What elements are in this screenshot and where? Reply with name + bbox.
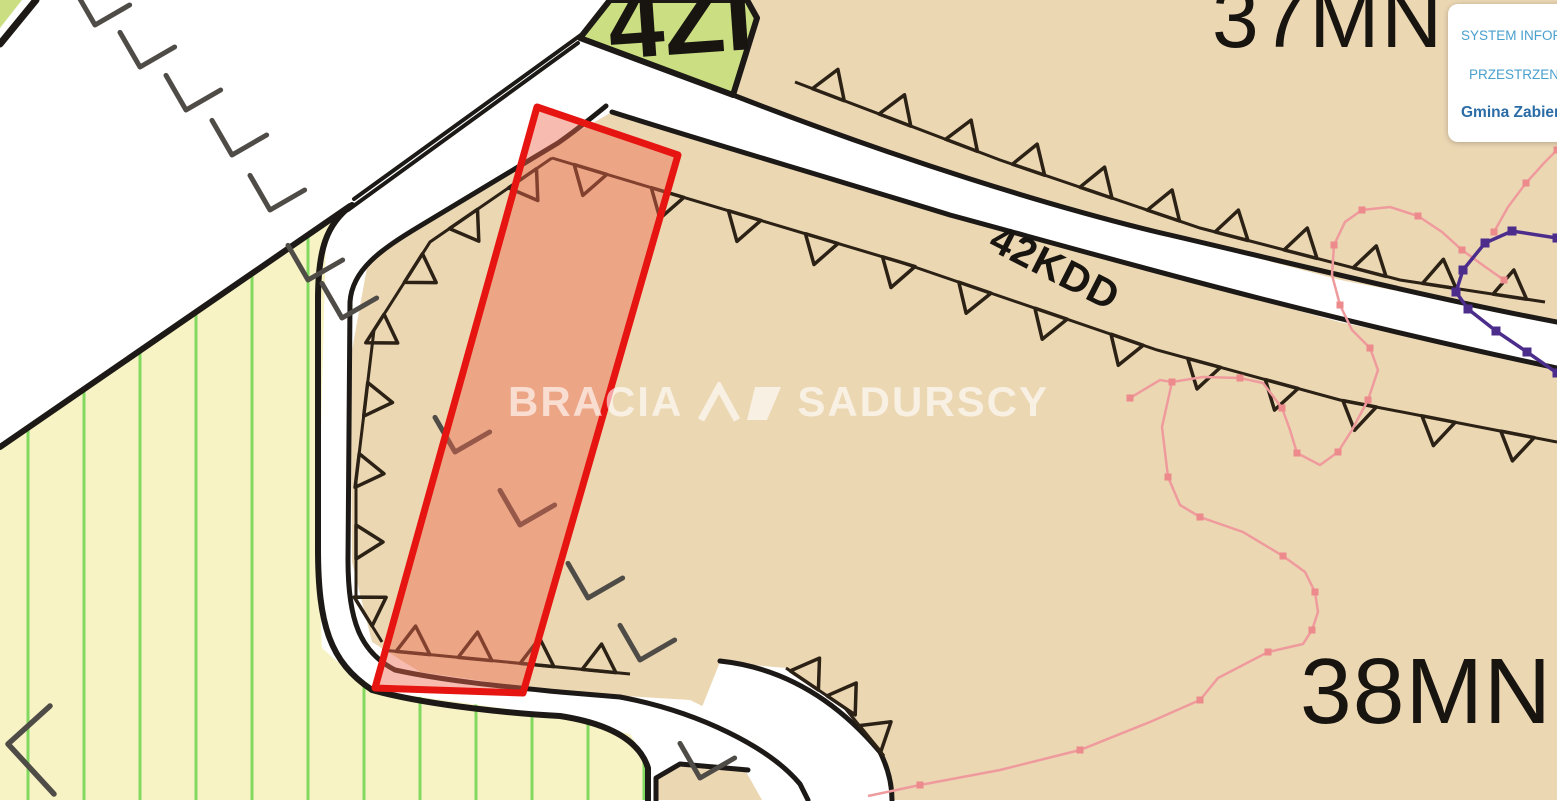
zone-label-4zi: 4ZI: [605, 0, 756, 75]
gis-system-title-line1: SYSTEM INFORM: [1461, 28, 1557, 43]
boundary-dash-mark: [75, 0, 130, 25]
boundary-dash-mark: [212, 100, 267, 155]
gis-info-panel: SYSTEM INFORM PRZESTRZENN Gmina Zabierz: [1448, 4, 1557, 142]
zone-label-38mn: 38MN: [1300, 645, 1552, 738]
map-canvas[interactable]: 4ZI 37MN 38MN 42KDD BRACIA SADURSCY SYST…: [0, 0, 1557, 801]
boundary-dash-mark: [166, 55, 221, 110]
boundary-dash-mark: [250, 155, 305, 210]
gis-municipality-link[interactable]: Gmina Zabierz: [1461, 104, 1557, 122]
gis-system-title-line2: PRZESTRZENN: [1469, 67, 1557, 82]
boundary-dash-mark: [120, 12, 175, 67]
zone-label-37mn: 37MN: [1212, 0, 1444, 60]
